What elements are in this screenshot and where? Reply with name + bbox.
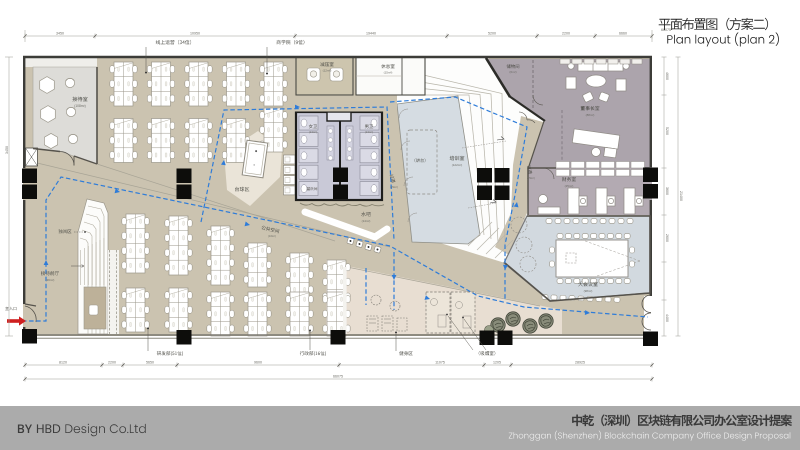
svg-text:(13m²): (13m²) [309,130,317,134]
svg-text:5650: 5650 [146,361,154,365]
svg-text:(108m²): (108m²) [74,104,86,108]
svg-text:66075: 66075 [661,28,671,32]
svg-text:(14m²): (14m²) [362,219,371,223]
svg-text:8120: 8120 [59,361,67,365]
svg-text:(13m²): (13m²) [365,130,373,134]
svg-text:(98m²): (98m²) [584,289,593,293]
svg-text:19440: 19440 [366,32,376,36]
svg-text:3600: 3600 [665,187,669,195]
svg-text:9600: 9600 [254,361,262,365]
svg-text:10950: 10950 [190,32,200,36]
svg-text:2200: 2200 [108,361,116,365]
svg-text:4400: 4400 [665,314,669,322]
svg-text:5200: 5200 [665,127,669,135]
svg-text:28925: 28925 [575,361,585,365]
svg-text:(12m²): (12m²) [323,69,332,73]
svg-text:6660: 6660 [619,32,627,36]
svg-text:3450: 3450 [5,146,9,154]
svg-text:2600: 2600 [665,234,669,242]
svg-text:(29m²): (29m²) [527,176,535,180]
svg-text:21400: 21400 [679,191,683,201]
svg-text:(122m²): (122m²) [452,163,463,167]
svg-text:(25m²): (25m²) [565,184,574,188]
svg-text:2200: 2200 [562,32,570,36]
svg-text:(6m²): (6m²) [509,70,516,74]
svg-text:1205: 1205 [493,361,501,365]
svg-text:5200: 5200 [488,32,496,36]
svg-text:66075: 66075 [333,375,343,379]
svg-text:3450: 3450 [56,32,64,36]
svg-text:11075: 11075 [435,361,445,365]
svg-text:(16m²): (16m²) [268,234,276,238]
svg-text:(36m²): (36m²) [46,278,55,282]
svg-text:4600: 4600 [665,72,669,80]
svg-text:(29m²): (29m²) [390,185,398,189]
svg-text:(15m²): (15m²) [384,71,393,75]
svg-text:(88m²): (88m²) [586,113,595,117]
